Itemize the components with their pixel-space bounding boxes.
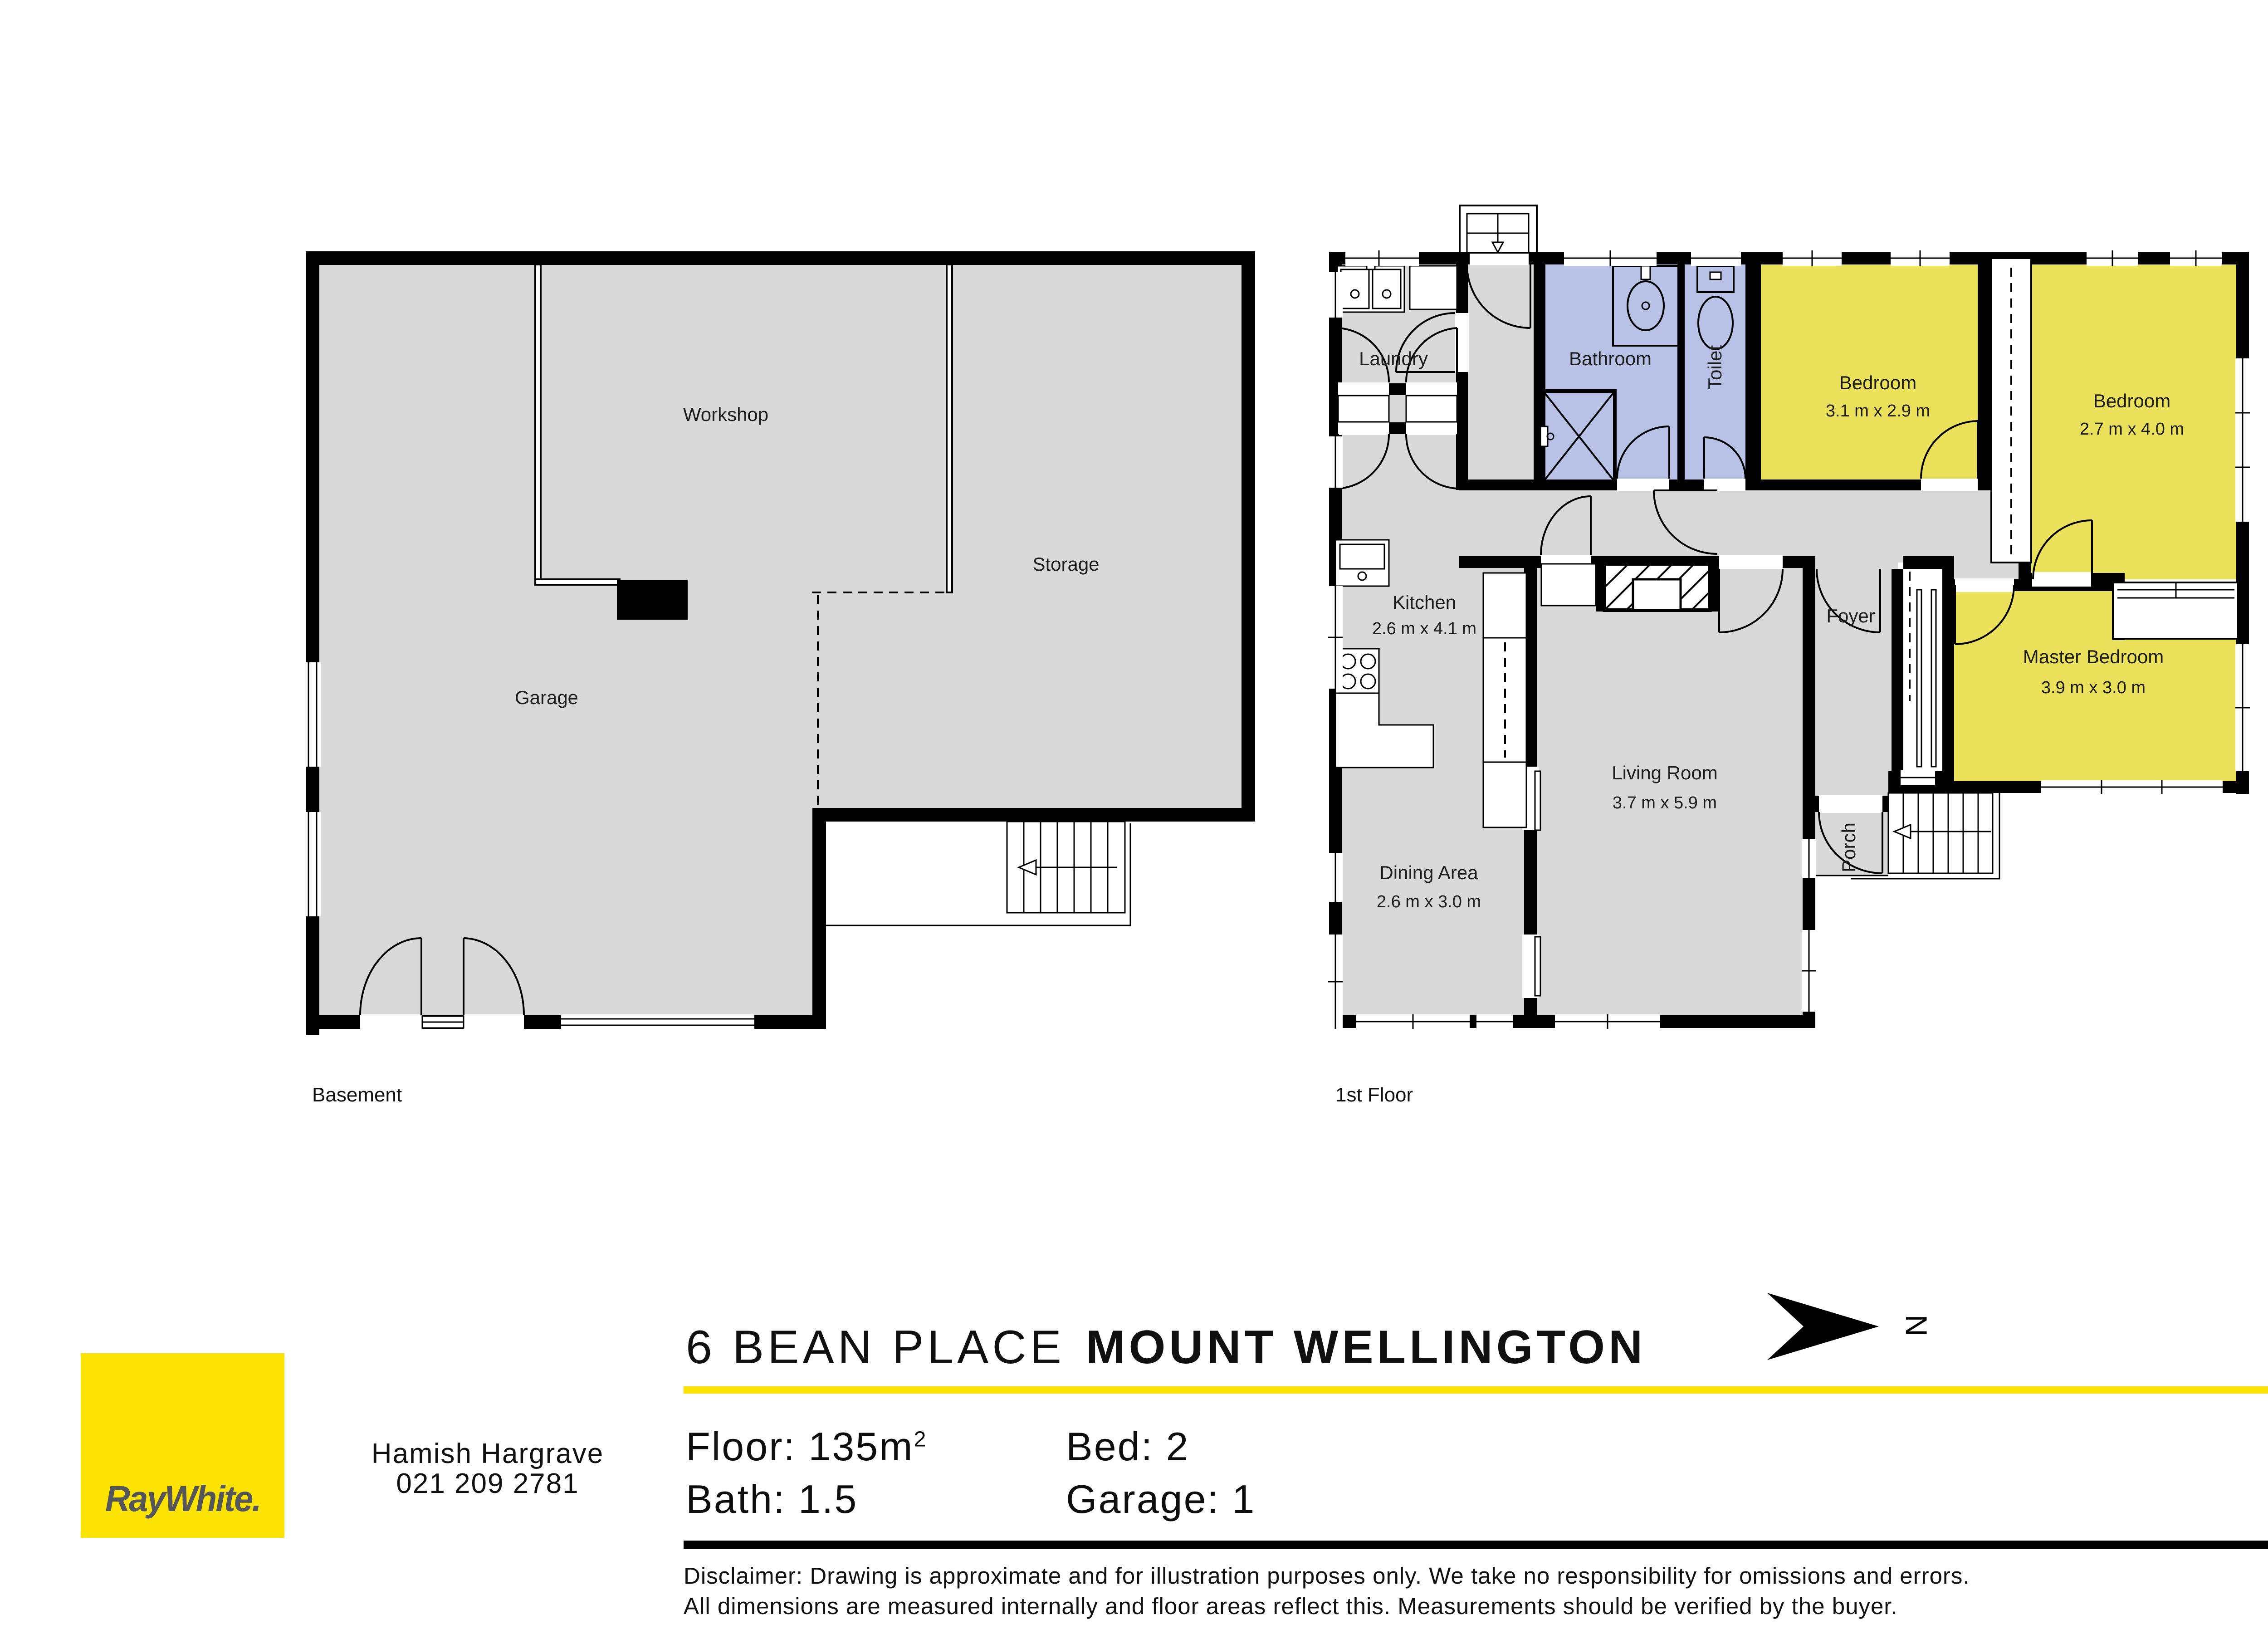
agent-block: Hamish Hargrave 021 209 2781 [349, 1439, 626, 1498]
stat-bath: Bath: 1.5 [686, 1476, 858, 1522]
disclaimer-line1: Disclaimer: Drawing is approximate and f… [684, 1561, 1970, 1591]
stairwell-hatch [1541, 564, 1710, 610]
address-street: 6 BEAN PLACE [686, 1321, 1065, 1374]
basement-plan: Workshop Garage Storage Basement [304, 251, 1255, 1106]
raywhite-logo-text: RayWhite. [105, 1478, 260, 1520]
agent-name: Hamish Hargrave [349, 1439, 626, 1469]
basement-stairs [821, 822, 1130, 925]
north-arrow-icon [1767, 1293, 1879, 1360]
room-label-kitchen: Kitchen [1393, 592, 1456, 613]
address-suburb: MOUNT WELLINGTON [1086, 1321, 1646, 1374]
disclaimer-line2: All dimensions are measured internally a… [684, 1591, 1970, 1621]
basement-bottom-window [561, 1014, 754, 1029]
room-label-foyer: Foyer [1826, 605, 1875, 626]
yellow-divider [684, 1386, 2268, 1394]
room-label-dining: Dining Area [1379, 862, 1478, 883]
room-label-garage: Garage [515, 687, 578, 708]
black-divider [684, 1541, 2268, 1549]
room-label-storage: Storage [1032, 553, 1099, 575]
room-label-bathroom: Bathroom [1569, 348, 1652, 369]
room-dims-bedroom1: 3.1 m x 2.9 m [1826, 401, 1930, 421]
room-label-porch: Porch [1838, 822, 1859, 872]
floorplan-page: Workshop Garage Storage Basement [0, 0, 2268, 1644]
disclaimer-text: Disclaimer: Drawing is approximate and f… [684, 1561, 1970, 1622]
room-dims-dining: 2.6 m x 3.0 m [1377, 892, 1481, 911]
entry-landing [1460, 205, 1537, 253]
room-dims-kitchen: 2.6 m x 4.1 m [1372, 619, 1476, 638]
porch-balustrade [1910, 572, 1936, 767]
room-label-living: Living Room [1612, 762, 1717, 783]
room-label-toilet: Toilet [1704, 345, 1725, 390]
stat-floor: Floor: 135m2 [686, 1424, 927, 1470]
floor-plans: Workshop Garage Storage Basement [0, 0, 2268, 1179]
stat-garage: Garage: 1 [1066, 1476, 1256, 1522]
wardrobe-strip [1991, 258, 2031, 563]
room-label-bedroom1: Bedroom [1839, 372, 1916, 393]
stat-bed: Bed: 2 [1066, 1424, 1189, 1470]
room-dims-bedroom2: 2.7 m x 4.0 m [2080, 420, 2184, 439]
agent-phone: 021 209 2781 [349, 1469, 626, 1499]
first-floor-plan: Laundry Bathroom Toilet Bedroom 3.1 m x … [1328, 205, 2250, 1106]
room-label-master: Master Bedroom [2023, 646, 2164, 667]
master-window-bay [2113, 582, 2238, 639]
room-label-bedroom2: Bedroom [2093, 390, 2170, 411]
room-dims-living: 3.7 m x 5.9 m [1613, 793, 1717, 812]
room-foyer-area [1809, 563, 1898, 812]
chimney-block [617, 580, 688, 620]
room-living-area [1537, 563, 1803, 1022]
room-dims-master: 3.9 m x 3.0 m [2041, 678, 2146, 697]
first-floor-title: 1st Floor [1335, 1084, 1413, 1106]
property-address: 6 BEAN PLACEMOUNT WELLINGTON [686, 1324, 1646, 1371]
room-bathroom-area [1540, 264, 1677, 486]
north-arrow: N [1760, 1287, 1941, 1368]
raywhite-logo: RayWhite. [81, 1353, 284, 1538]
room-label-workshop: Workshop [683, 404, 768, 425]
north-label: N [1900, 1315, 1933, 1336]
room-label-laundry: Laundry [1359, 348, 1428, 369]
basement-title: Basement [312, 1084, 402, 1106]
